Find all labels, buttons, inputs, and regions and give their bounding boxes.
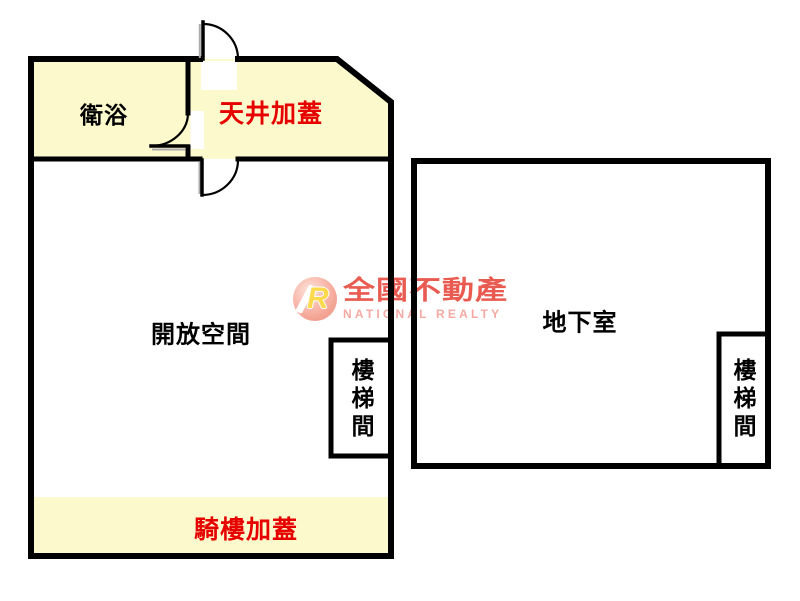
basement-label: 地下室 bbox=[543, 303, 618, 338]
floorplan-canvas: R 全國不動產 NATIONAL REALTY bbox=[0, 0, 800, 601]
top-door-opening bbox=[201, 61, 237, 90]
open-space-label: 開放空間 bbox=[151, 315, 251, 350]
bathroom-label: 衛浴 bbox=[80, 96, 128, 130]
arcade-addition-label: 騎樓加蓋 bbox=[194, 510, 298, 546]
left-stairwell-label: 樓梯間 bbox=[344, 358, 378, 442]
door-bottom-swing-arc bbox=[202, 160, 238, 195]
door-top-swing-arc bbox=[203, 24, 238, 59]
bathroom-door-opening bbox=[191, 111, 205, 149]
walls-layer bbox=[0, 0, 800, 601]
skylight-addition-label: 天井加蓋 bbox=[219, 94, 323, 130]
left-building-outline bbox=[31, 59, 391, 556]
door-bottom bbox=[202, 160, 238, 195]
right-stairwell-label: 樓梯間 bbox=[726, 358, 760, 442]
door-bathroom bbox=[151, 113, 188, 146]
door-shadows bbox=[153, 25, 200, 193]
door-top bbox=[203, 22, 238, 59]
door-bathroom-swing-arc bbox=[151, 113, 188, 146]
